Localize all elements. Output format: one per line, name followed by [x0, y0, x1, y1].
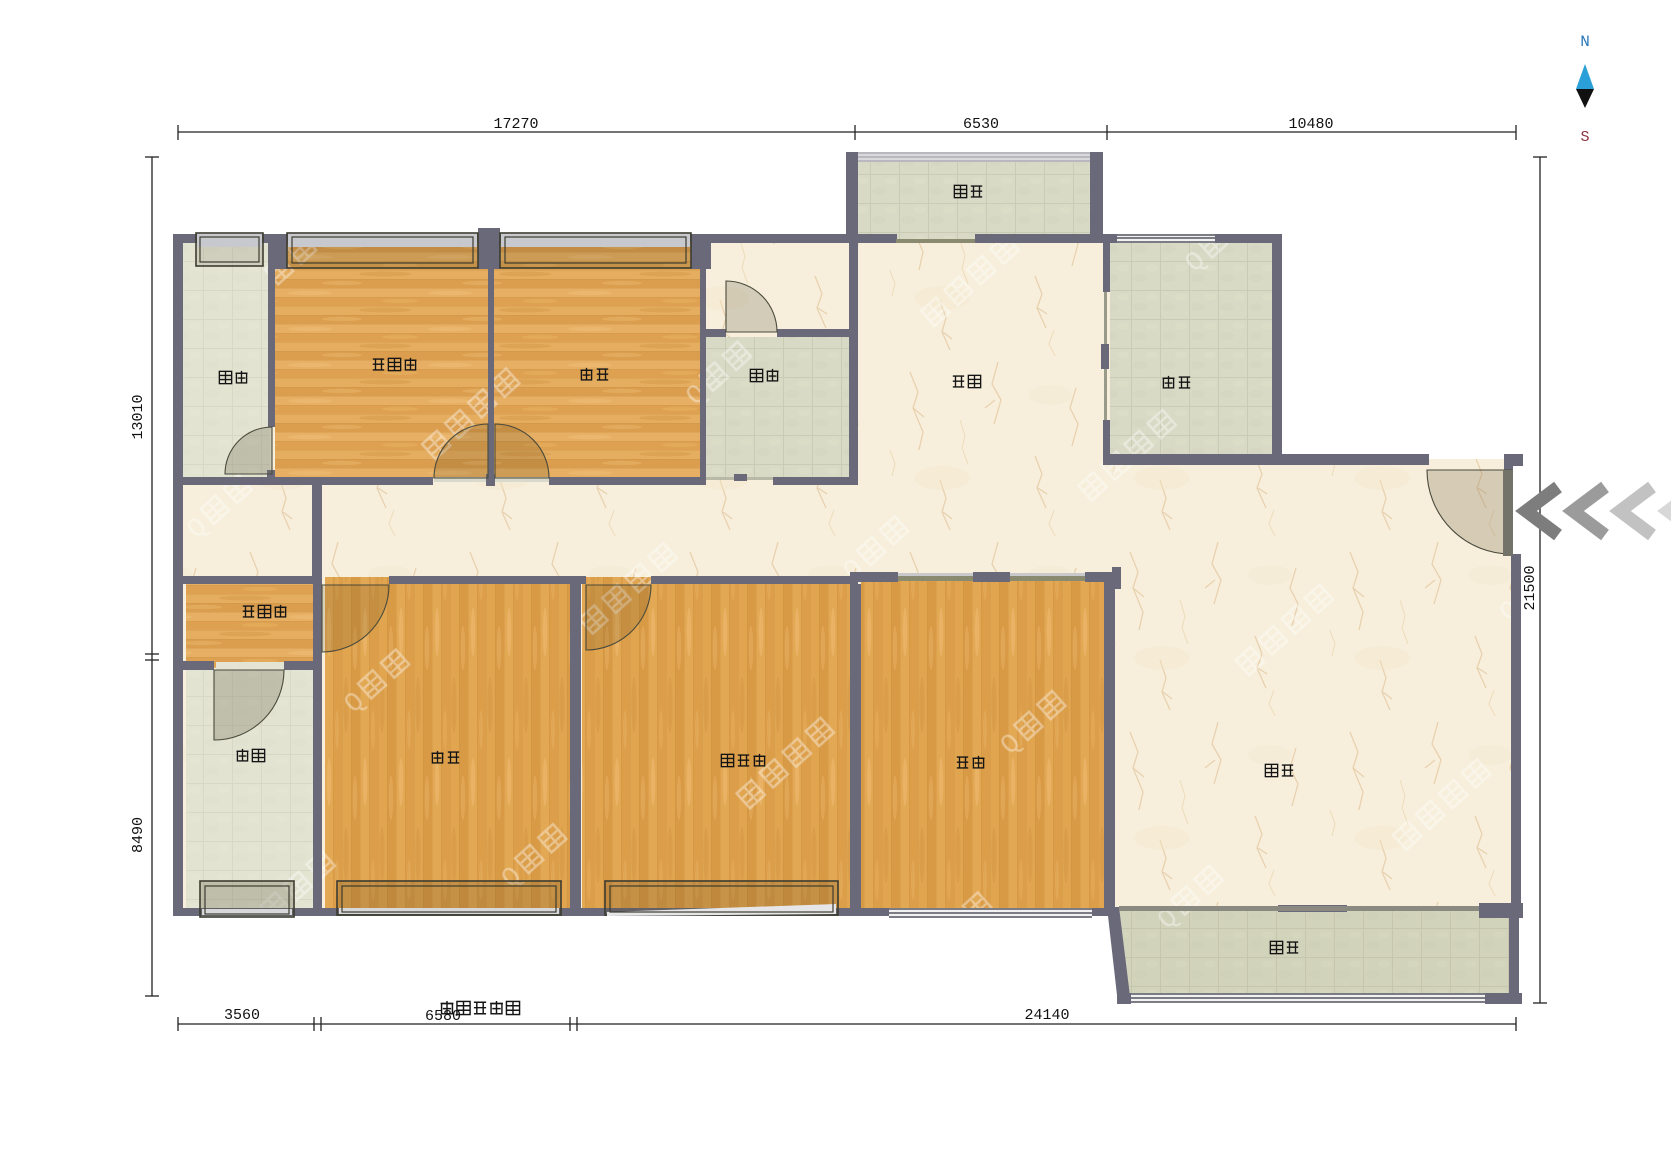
svg-text:6530: 6530 [963, 116, 999, 133]
svg-text:6580: 6580 [425, 1008, 461, 1025]
svg-text:N: N [1580, 33, 1590, 51]
svg-text:3560: 3560 [224, 1007, 260, 1024]
svg-text:21500: 21500 [1522, 565, 1539, 610]
svg-text:24140: 24140 [1024, 1007, 1069, 1024]
svg-text:S: S [1580, 129, 1589, 146]
svg-text:13010: 13010 [130, 394, 147, 439]
svg-text:17270: 17270 [493, 116, 538, 133]
svg-text:8490: 8490 [130, 817, 147, 853]
svg-text:10480: 10480 [1288, 116, 1333, 133]
